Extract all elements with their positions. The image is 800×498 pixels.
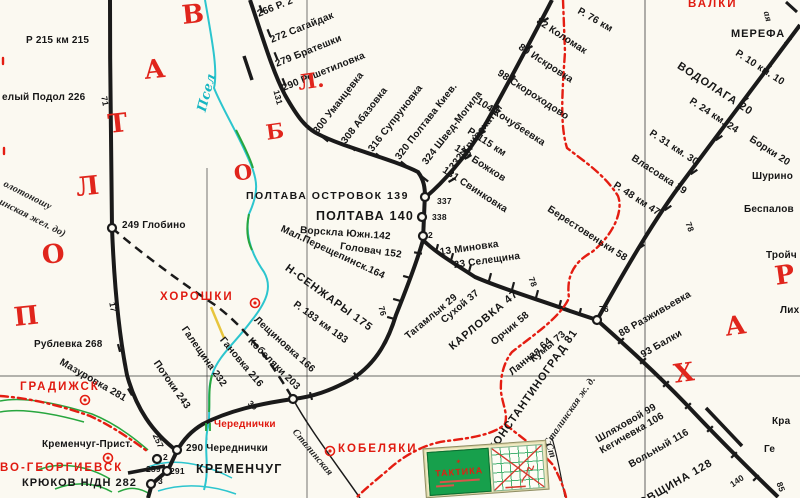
railway-dashed-globino xyxy=(112,228,293,399)
region-letter-obl-b: Б xyxy=(264,118,285,145)
shoreline xyxy=(0,411,84,422)
logo-brand: ТАКТИКА xyxy=(435,465,484,478)
town-khoroshki: ХОРОШКИ xyxy=(160,292,234,304)
km-259: 259 xyxy=(146,465,161,474)
junction-station-circle xyxy=(108,224,116,232)
station-tick xyxy=(310,392,312,400)
region-letter-khar-r: Р xyxy=(773,259,797,291)
station-globino: 249 Глобино xyxy=(122,221,186,231)
town-circle-icon-center xyxy=(253,301,256,304)
town-gradizhsk: ГРАДИЖСК xyxy=(20,382,100,394)
station-kryukov: КРЮКОВ Н/ДН 282 xyxy=(22,478,137,489)
junction-station-circle xyxy=(153,455,161,463)
station-likh: Лих xyxy=(780,306,799,316)
region-letter-khar-a: А xyxy=(723,310,748,343)
star-icon: ✶ xyxy=(455,458,461,465)
station-poltava: ПОЛТАВА 140 xyxy=(316,210,414,223)
town-kobelyaki: КОБЕЛЯКИ xyxy=(338,444,418,456)
junction-station-circle xyxy=(289,395,297,403)
region-letter-obl-o: О xyxy=(232,159,254,186)
railway-corner-tick xyxy=(786,2,797,12)
km-338: 338 xyxy=(432,213,447,222)
station-tick xyxy=(393,299,401,301)
line-number-76a: 76 xyxy=(377,305,388,317)
shoreline xyxy=(118,488,150,494)
junction-station-circle xyxy=(421,193,429,201)
junction-station-circle xyxy=(173,446,181,454)
station-shurino: Шурино xyxy=(752,172,793,182)
logo-grid-panel xyxy=(491,444,546,492)
station-vesely-podol: елый Подол 226 xyxy=(2,93,85,103)
logo-tagline-mark xyxy=(440,478,480,483)
town-valki: ВАЛКИ xyxy=(688,0,738,11)
station-rublevka: Рублевка 268 xyxy=(34,340,103,350)
station-merefa: МЕРЕФА xyxy=(731,29,785,40)
station-tick xyxy=(414,252,422,253)
km-3: 3 xyxy=(158,477,163,486)
logo-panel: ✶ ТАКТИКА xyxy=(427,448,492,496)
km-291: 291 xyxy=(170,467,185,476)
junction-station-circle xyxy=(147,480,155,488)
label-fragment-ge: Ге xyxy=(764,445,775,455)
junction-station-circle xyxy=(593,316,601,324)
station-tick xyxy=(489,273,491,281)
km-76b: 76 xyxy=(599,305,609,314)
town-circle-icon-center xyxy=(83,398,86,401)
line-number-17: 17 xyxy=(108,302,118,313)
railway-map: Р 215 км 215елый Подол 226249 ГлобиноРуб… xyxy=(0,0,800,498)
junction-station-circle xyxy=(419,232,427,240)
km-337: 337 xyxy=(437,197,452,206)
logo-tagline-mark2 xyxy=(436,484,454,487)
region-letter-kha: Х xyxy=(672,357,696,390)
region-letter-a: А xyxy=(142,54,166,86)
double-track-mark xyxy=(244,56,252,80)
station-tick xyxy=(118,344,120,352)
region-letter-obl-l: Л. xyxy=(296,66,326,94)
km-2b: 2 xyxy=(428,231,433,240)
publisher-logo: ✶ ТАКТИКА xyxy=(422,440,549,498)
logo-grid-art xyxy=(492,445,545,490)
station-kremenchug: КРЕМЕНЧУГ xyxy=(196,463,283,476)
town-circle-icon-center xyxy=(106,456,109,459)
junction-station-circle xyxy=(418,213,426,221)
line-number-71: 71 xyxy=(100,96,110,107)
km-2a: 2 xyxy=(163,453,168,462)
region-letter-o: О xyxy=(40,239,66,271)
station-kremenchug-prist: Кременчуг-Прист. xyxy=(42,440,133,450)
station-r215km: Р 215 км 215 xyxy=(26,36,89,46)
region-letter-l: Л xyxy=(74,171,100,203)
region-letter-p: П xyxy=(12,300,40,332)
region-letter-v: В xyxy=(180,0,205,31)
town-cherednichki: Череднички xyxy=(214,420,276,430)
station-bespalov: Беспалов xyxy=(744,205,794,215)
station-cherednichki: 290 Череднички xyxy=(186,444,268,454)
shoreline-cyan xyxy=(158,486,236,494)
station-tick xyxy=(536,290,538,298)
region-letter-t: Т xyxy=(106,108,129,140)
station-poltava-ostrovok: ПОЛТАВА ОСТРОВОК 139 xyxy=(246,191,409,202)
town-circle-icon-center xyxy=(328,449,331,452)
town-novo-georgievsk: ВО-ГЕОРГИЕВСК xyxy=(0,463,123,475)
label-fragment-kra: Кра xyxy=(772,417,790,427)
river-green-segment xyxy=(209,375,212,412)
